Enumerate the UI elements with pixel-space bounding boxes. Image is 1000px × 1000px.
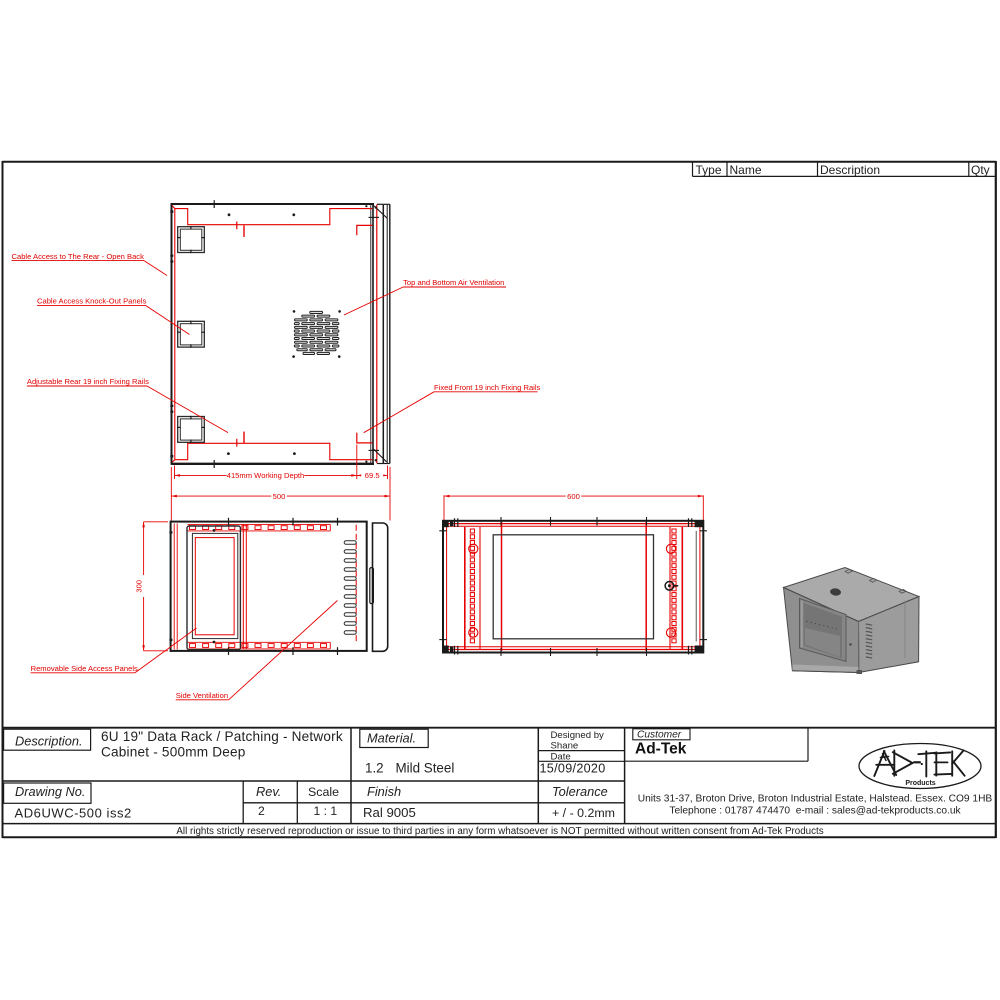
svg-text:Finish: Finish	[367, 784, 401, 799]
svg-text:Cabinet - 500mm Deep: Cabinet - 500mm Deep	[101, 744, 246, 759]
svg-text:1.2: 1.2	[365, 761, 384, 776]
svg-text:Description.: Description.	[15, 734, 83, 749]
svg-text:Rev.: Rev.	[256, 784, 281, 799]
svg-text:69.5: 69.5	[365, 471, 380, 480]
svg-text:All rights strictly reserved r: All rights strictly reserved reproductio…	[176, 826, 823, 837]
svg-text:Telephone : 01787 474470 e-ma: Telephone : 01787 474470 e-mail : sales@…	[669, 805, 961, 816]
svg-text:2: 2	[258, 804, 265, 818]
svg-text:Products: Products	[905, 780, 935, 787]
svg-text:Cable Access Knock-Out Panels: Cable Access Knock-Out Panels	[37, 297, 147, 306]
svg-text:Shane: Shane	[551, 741, 579, 752]
svg-text:300: 300	[135, 580, 144, 593]
svg-text:Designed by: Designed by	[551, 730, 605, 741]
svg-text:Scale: Scale	[308, 785, 339, 799]
svg-text:600: 600	[567, 492, 580, 501]
svg-text:415mm Working Depth: 415mm Working Depth	[227, 471, 305, 480]
svg-text:Description: Description	[820, 163, 880, 177]
svg-text:Removable Side Access Panels: Removable Side Access Panels	[31, 664, 138, 673]
svg-text:Customer: Customer	[637, 730, 682, 741]
svg-text:15/09/2020: 15/09/2020	[540, 762, 606, 776]
svg-text:Cable Access to The Rear - Ope: Cable Access to The Rear - Open Back	[12, 252, 145, 261]
svg-text:Qty: Qty	[971, 163, 990, 177]
svg-text:Mild Steel: Mild Steel	[396, 761, 455, 776]
svg-text:Material.: Material.	[367, 730, 416, 745]
svg-text:Tolerance: Tolerance	[552, 784, 608, 799]
svg-text:6U 19" Data Rack / Patching -: 6U 19" Data Rack / Patching - Network	[101, 729, 343, 744]
svg-text:Fixed Front 19 inch Fixing Rai: Fixed Front 19 inch Fixing Rails	[434, 383, 541, 392]
svg-text:AD6UWC-500 iss2: AD6UWC-500 iss2	[15, 805, 132, 820]
svg-text:Side Ventilation: Side Ventilation	[176, 691, 228, 700]
svg-text:Adjustable Rear 19 inch Fixing: Adjustable Rear 19 inch Fixing Rails	[27, 377, 149, 386]
svg-text:500: 500	[273, 492, 286, 501]
svg-text:1 : 1: 1 : 1	[314, 804, 338, 818]
svg-text:Units 31-37, Broton Drive, Bro: Units 31-37, Broton Drive, Broton Indust…	[638, 793, 993, 804]
svg-text:Ad-Tek: Ad-Tek	[635, 741, 687, 758]
svg-text:+ / - 0.2mm: + / - 0.2mm	[552, 806, 615, 820]
svg-text:Name: Name	[730, 163, 762, 177]
svg-text:Top and Bottom Air Ventilation: Top and Bottom Air Ventilation	[403, 278, 504, 287]
svg-text:Ral 9005: Ral 9005	[363, 805, 416, 820]
svg-text:Type: Type	[696, 163, 722, 177]
svg-text:Drawing No.: Drawing No.	[15, 784, 85, 799]
